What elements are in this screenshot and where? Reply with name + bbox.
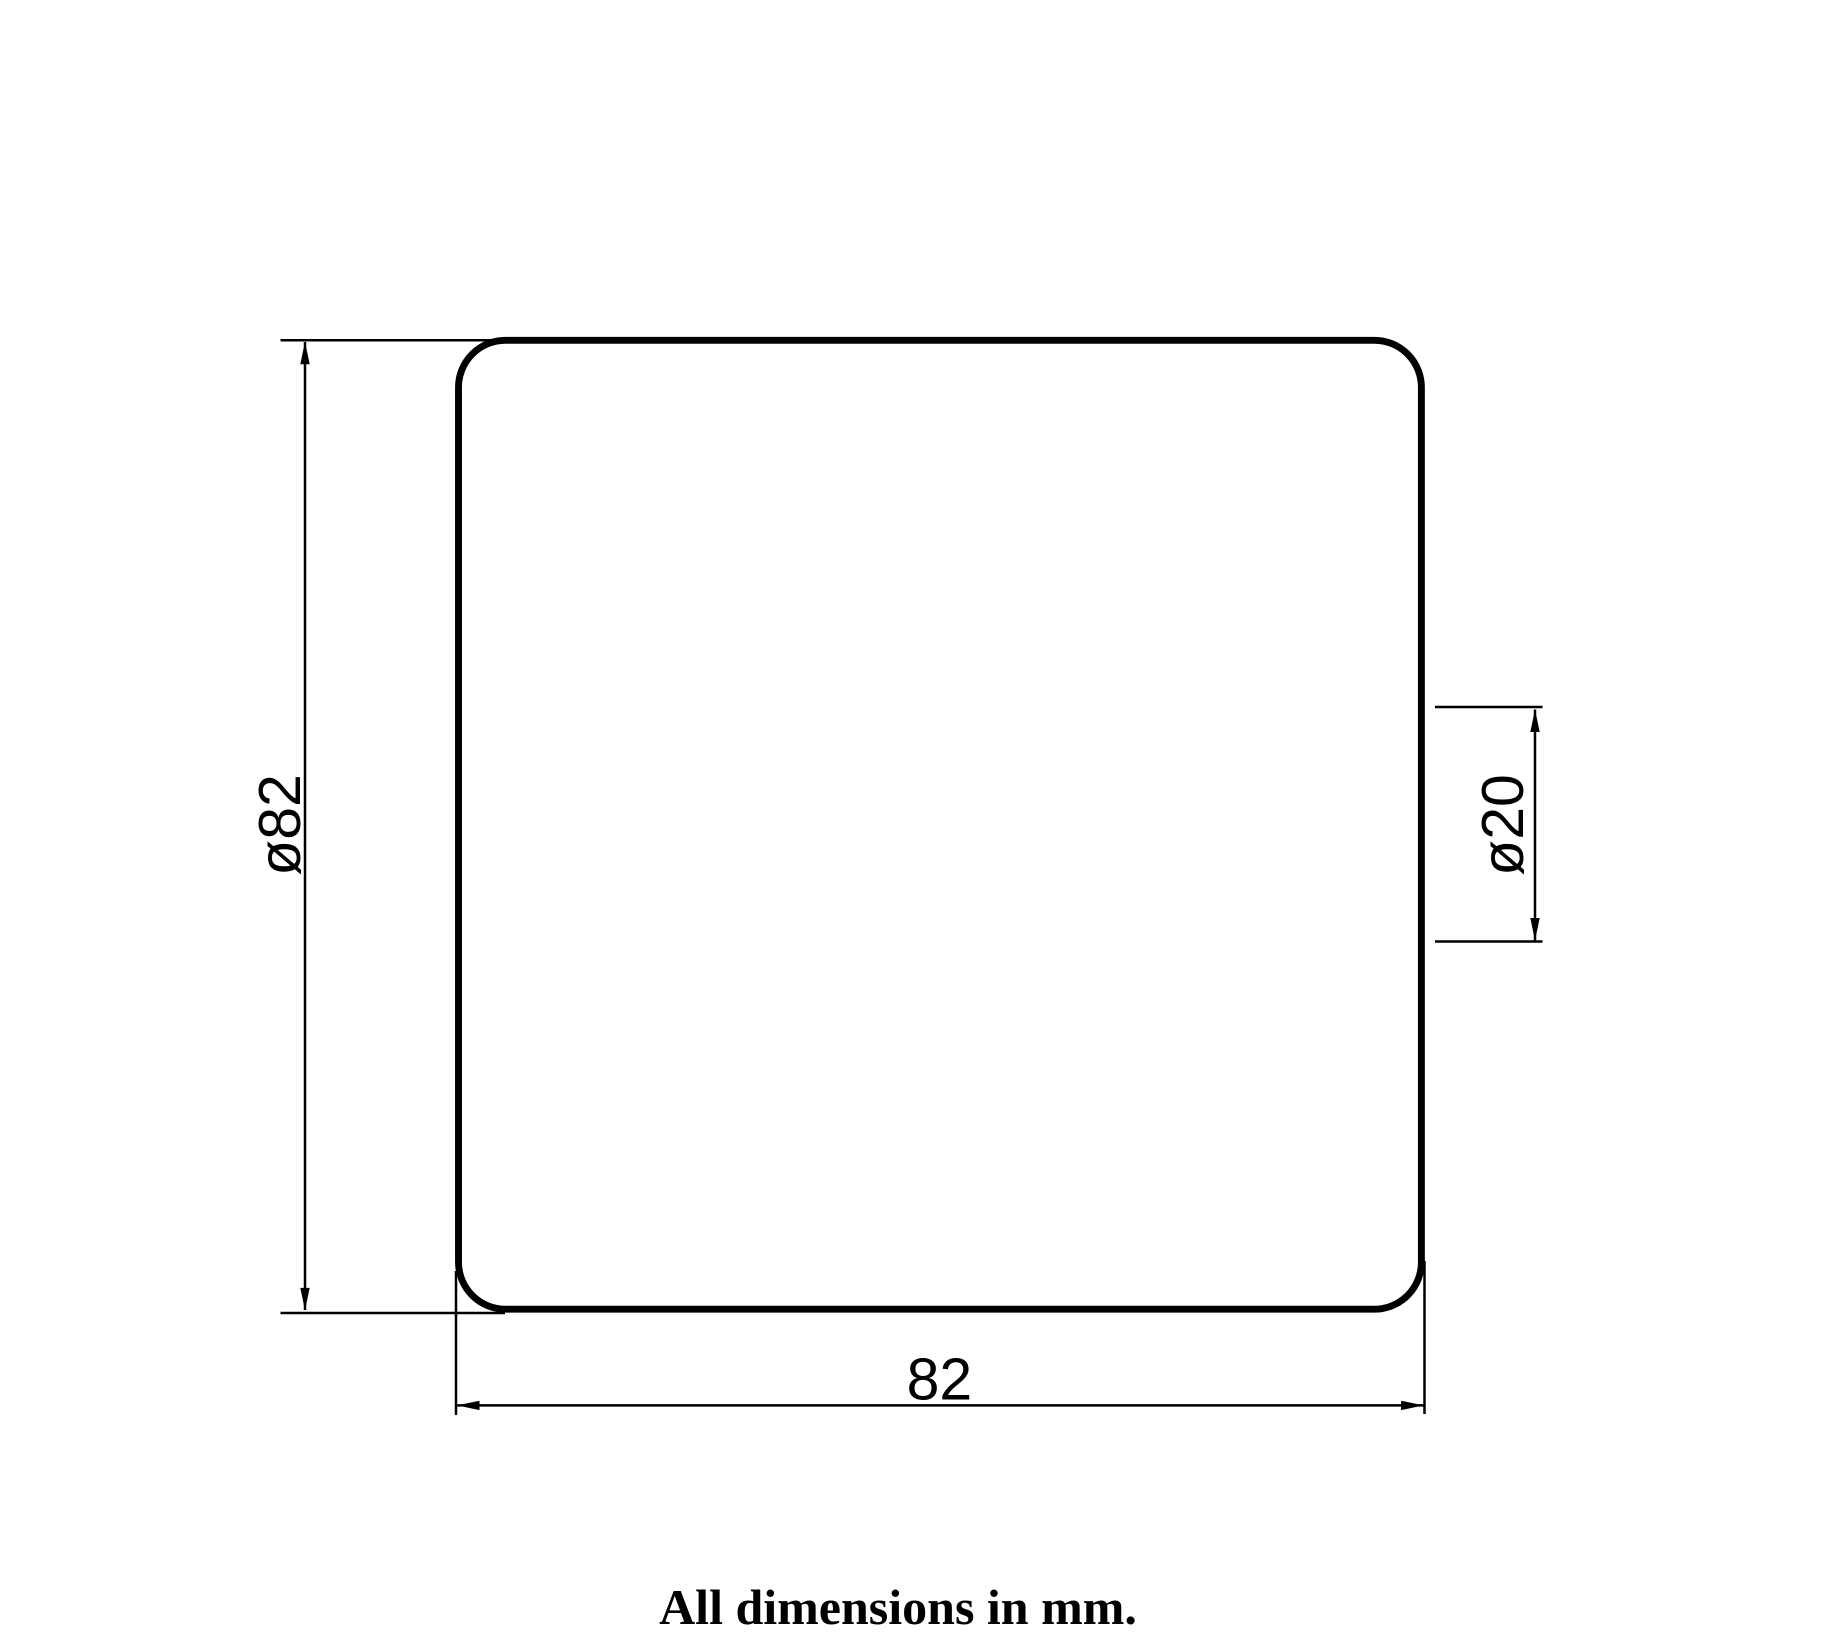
svg-text:All dimensions in mm.: All dimensions in mm. <box>659 1579 1137 1635</box>
svg-text:ø82: ø82 <box>247 774 313 876</box>
svg-text:82: 82 <box>907 1346 973 1412</box>
svg-text:ø20: ø20 <box>1470 774 1536 876</box>
